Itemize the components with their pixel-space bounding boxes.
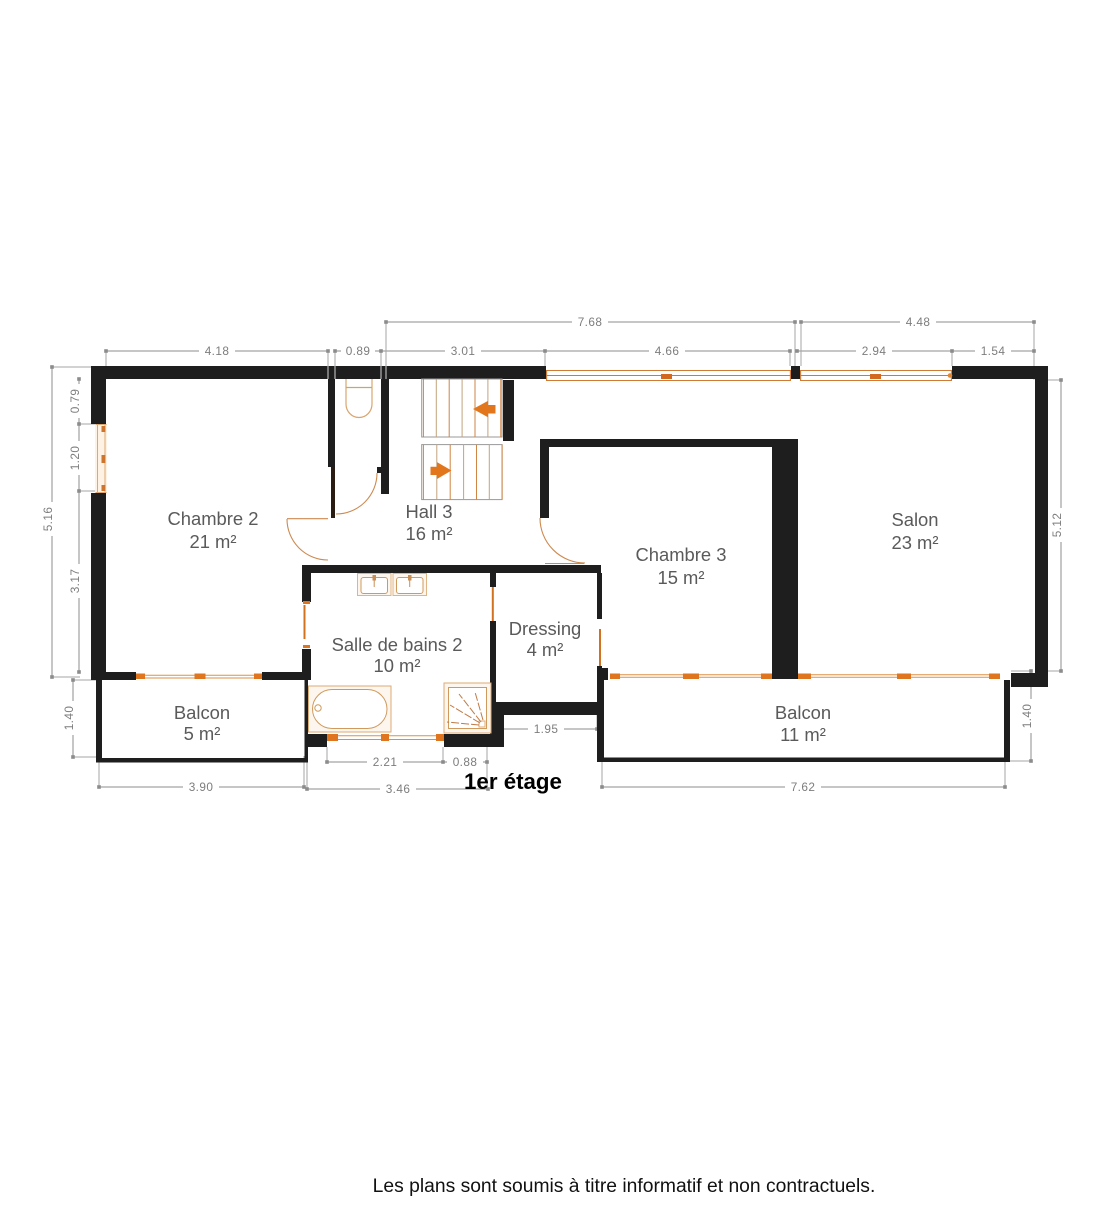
svg-text:Salon: Salon — [891, 509, 938, 530]
svg-text:4.18: 4.18 — [205, 344, 230, 358]
svg-text:10 m²: 10 m² — [373, 655, 420, 676]
svg-text:3.17: 3.17 — [68, 569, 82, 594]
svg-text:7.62: 7.62 — [791, 780, 816, 794]
svg-text:23 m²: 23 m² — [891, 532, 938, 553]
svg-text:1.20: 1.20 — [68, 446, 82, 471]
svg-text:4.48: 4.48 — [906, 315, 931, 329]
svg-text:21 m²: 21 m² — [189, 531, 236, 552]
svg-text:5.16: 5.16 — [41, 507, 55, 532]
svg-text:0.89: 0.89 — [346, 344, 371, 358]
svg-text:3.01: 3.01 — [451, 344, 476, 358]
svg-text:Dressing: Dressing — [509, 618, 582, 639]
svg-text:16 m²: 16 m² — [405, 523, 452, 544]
svg-text:11 m²: 11 m² — [780, 724, 826, 745]
svg-text:Hall 3: Hall 3 — [405, 501, 452, 522]
svg-text:1er étage: 1er étage — [464, 769, 562, 794]
svg-text:5.12: 5.12 — [1050, 513, 1064, 538]
svg-text:Chambre 2: Chambre 2 — [168, 508, 259, 529]
svg-text:1.54: 1.54 — [981, 344, 1006, 358]
svg-text:1.40: 1.40 — [62, 706, 76, 731]
svg-text:1.40: 1.40 — [1020, 704, 1034, 729]
svg-text:4 m²: 4 m² — [527, 639, 564, 660]
svg-text:Balcon: Balcon — [775, 702, 831, 723]
svg-text:2.21: 2.21 — [373, 755, 398, 769]
svg-text:4.66: 4.66 — [655, 344, 680, 358]
svg-text:0.79: 0.79 — [68, 389, 82, 414]
svg-text:3.46: 3.46 — [386, 782, 411, 796]
svg-text:Salle de bains 2: Salle de bains 2 — [332, 634, 463, 655]
svg-text:3.90: 3.90 — [189, 780, 214, 794]
svg-text:0.88: 0.88 — [453, 755, 478, 769]
svg-text:Chambre 3: Chambre 3 — [636, 544, 727, 565]
svg-text:1.95: 1.95 — [534, 722, 559, 736]
svg-text:7.68: 7.68 — [578, 315, 603, 329]
svg-text:Les plans sont soumis à titre: Les plans sont soumis à titre informatif… — [373, 1176, 876, 1197]
svg-text:5 m²: 5 m² — [184, 723, 221, 744]
svg-text:Balcon: Balcon — [174, 702, 230, 723]
svg-text:2.94: 2.94 — [862, 344, 887, 358]
svg-text:15 m²: 15 m² — [657, 567, 704, 588]
